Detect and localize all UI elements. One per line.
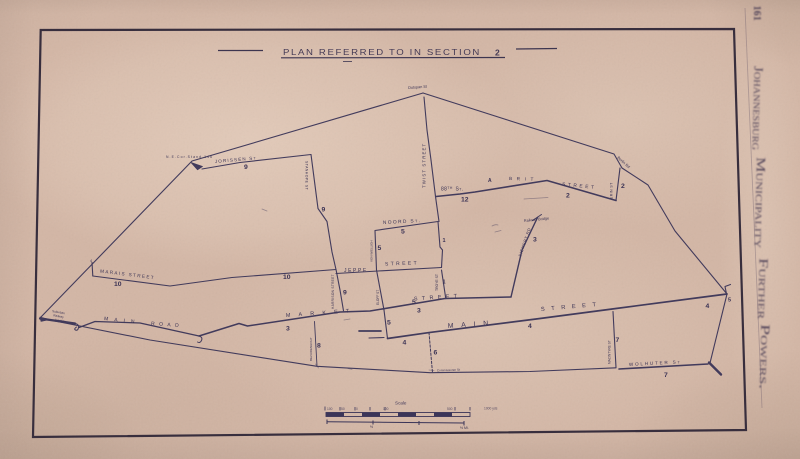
svg-text:7: 7	[616, 337, 620, 344]
svg-text:0: 0	[356, 407, 358, 411]
svg-text:10: 10	[114, 281, 122, 288]
svg-text:9: 9	[244, 164, 248, 171]
svg-text:Powers.: Powers.	[757, 324, 773, 389]
svg-text:5: 5	[401, 229, 405, 236]
svg-text:½: ½	[370, 425, 373, 429]
svg-text:HARRISON STREET: HARRISON STREET	[331, 274, 335, 309]
svg-text:Commissioner St: Commissioner St	[437, 368, 460, 373]
svg-text:161: 161	[751, 6, 762, 21]
svg-text:4: 4	[528, 323, 532, 330]
svg-text:1: 1	[443, 238, 446, 244]
svg-text:JEPPE: JEPPE	[344, 268, 368, 274]
svg-text:A: A	[488, 178, 492, 184]
svg-text:TWIST STREET: TWIST STREET	[422, 143, 427, 188]
svg-text:ERIN ST: ERIN ST	[610, 182, 614, 199]
svg-text:STANHOPE ST: STANHOPE ST	[305, 161, 309, 190]
svg-text:Scale: Scale	[395, 401, 407, 406]
svg-text:10: 10	[283, 274, 291, 281]
svg-text:5: 5	[728, 298, 731, 304]
svg-text:100: 100	[327, 407, 333, 411]
svg-text:N.E.Cor.Stand 146: N.E.Cor.Stand 146	[166, 155, 212, 159]
svg-text:7: 7	[664, 372, 668, 379]
svg-text:3: 3	[417, 308, 421, 315]
svg-text:½ Mi.: ½ Mi.	[460, 426, 469, 430]
svg-text:12: 12	[461, 197, 469, 204]
svg-text:2: 2	[495, 48, 500, 58]
svg-text:Further: Further	[755, 258, 771, 319]
svg-text:BRIT: BRIT	[509, 176, 538, 182]
svg-text:4: 4	[706, 303, 710, 310]
svg-text:4: 4	[90, 259, 92, 263]
svg-text:BEZUIDENHOUT: BEZUIDENHOUT	[309, 337, 313, 361]
svg-text:VON WIELLIGH: VON WIELLIGH	[370, 240, 374, 262]
svg-text:2: 2	[566, 193, 570, 200]
svg-text:500: 500	[447, 407, 453, 411]
svg-text:5: 5	[378, 245, 382, 252]
svg-text:9: 9	[343, 290, 347, 297]
svg-text:100: 100	[383, 407, 389, 411]
svg-text:TROYE ST: TROYE ST	[435, 274, 439, 291]
svg-text:8: 8	[317, 343, 321, 350]
svg-text:MACINTYRE ST: MACINTYRE ST	[608, 340, 612, 364]
svg-text:1: 1	[443, 280, 446, 286]
svg-text:3: 3	[286, 326, 290, 333]
svg-text:1000 yds: 1000 yds	[484, 407, 498, 411]
svg-text:PLAN REFERRED TO IN SECTION: PLAN REFERRED TO IN SECTION	[283, 48, 481, 57]
svg-text:2: 2	[621, 183, 625, 190]
svg-text:6: 6	[434, 350, 438, 357]
svg-text:4: 4	[403, 340, 407, 347]
svg-text:ELOFF ST: ELOFF ST	[376, 290, 380, 305]
svg-text:50: 50	[341, 407, 345, 411]
svg-text:Johannesburg: Johannesburg	[749, 66, 765, 151]
svg-text:5: 5	[387, 320, 391, 327]
svg-text:3: 3	[533, 237, 537, 244]
svg-text:9: 9	[322, 207, 326, 214]
svg-text:STREET: STREET	[385, 260, 419, 267]
svg-text:Municipality: Municipality	[752, 157, 768, 249]
